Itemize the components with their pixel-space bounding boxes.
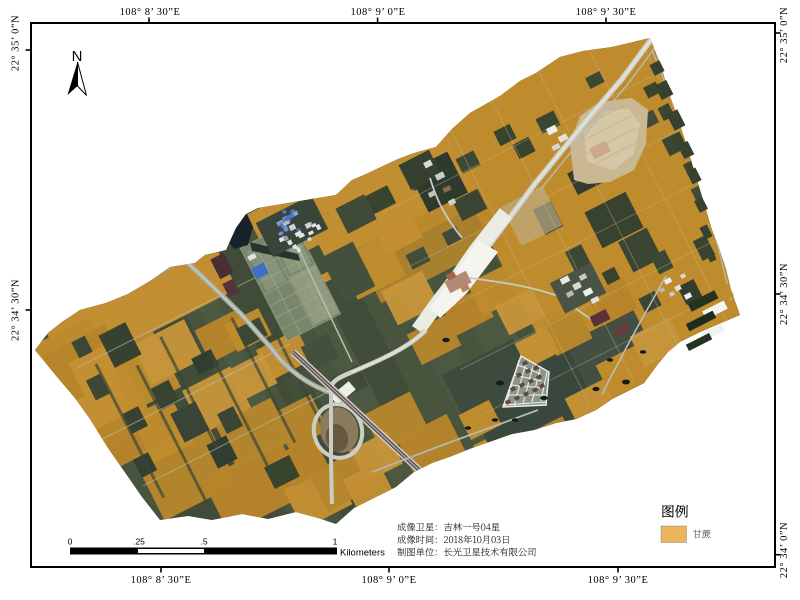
svg-text:108° 9’ 0”E: 108° 9’ 0”E [351, 7, 406, 18]
svg-text:108° 9’ 30”E: 108° 9’ 30”E [588, 575, 649, 586]
svg-text:108° 8’ 30”E: 108° 8’ 30”E [120, 7, 181, 18]
svg-text:108° 9’ 0”E: 108° 9’ 0”E [362, 575, 417, 586]
svg-text:Kilometers: Kilometers [340, 548, 385, 559]
svg-text:108° 8’ 30”E: 108° 8’ 30”E [131, 575, 192, 586]
svg-text:1: 1 [333, 537, 338, 547]
svg-text:22° 34’ 30”N: 22° 34’ 30”N [11, 279, 22, 341]
svg-text:22° 35’ 0”N: 22° 35’ 0”N [779, 7, 790, 63]
svg-text:0: 0 [68, 537, 73, 547]
svg-text:.25: .25 [133, 537, 145, 547]
svg-text:108° 9’ 30”E: 108° 9’ 30”E [576, 7, 637, 18]
svg-text:22° 35’ 0”N: 22° 35’ 0”N [11, 15, 22, 71]
svg-text:.5: .5 [200, 537, 207, 547]
svg-text:22° 34’ 30”N: 22° 34’ 30”N [779, 263, 790, 325]
svg-text:22° 34’ 0”N: 22° 34’ 0”N [779, 522, 790, 578]
